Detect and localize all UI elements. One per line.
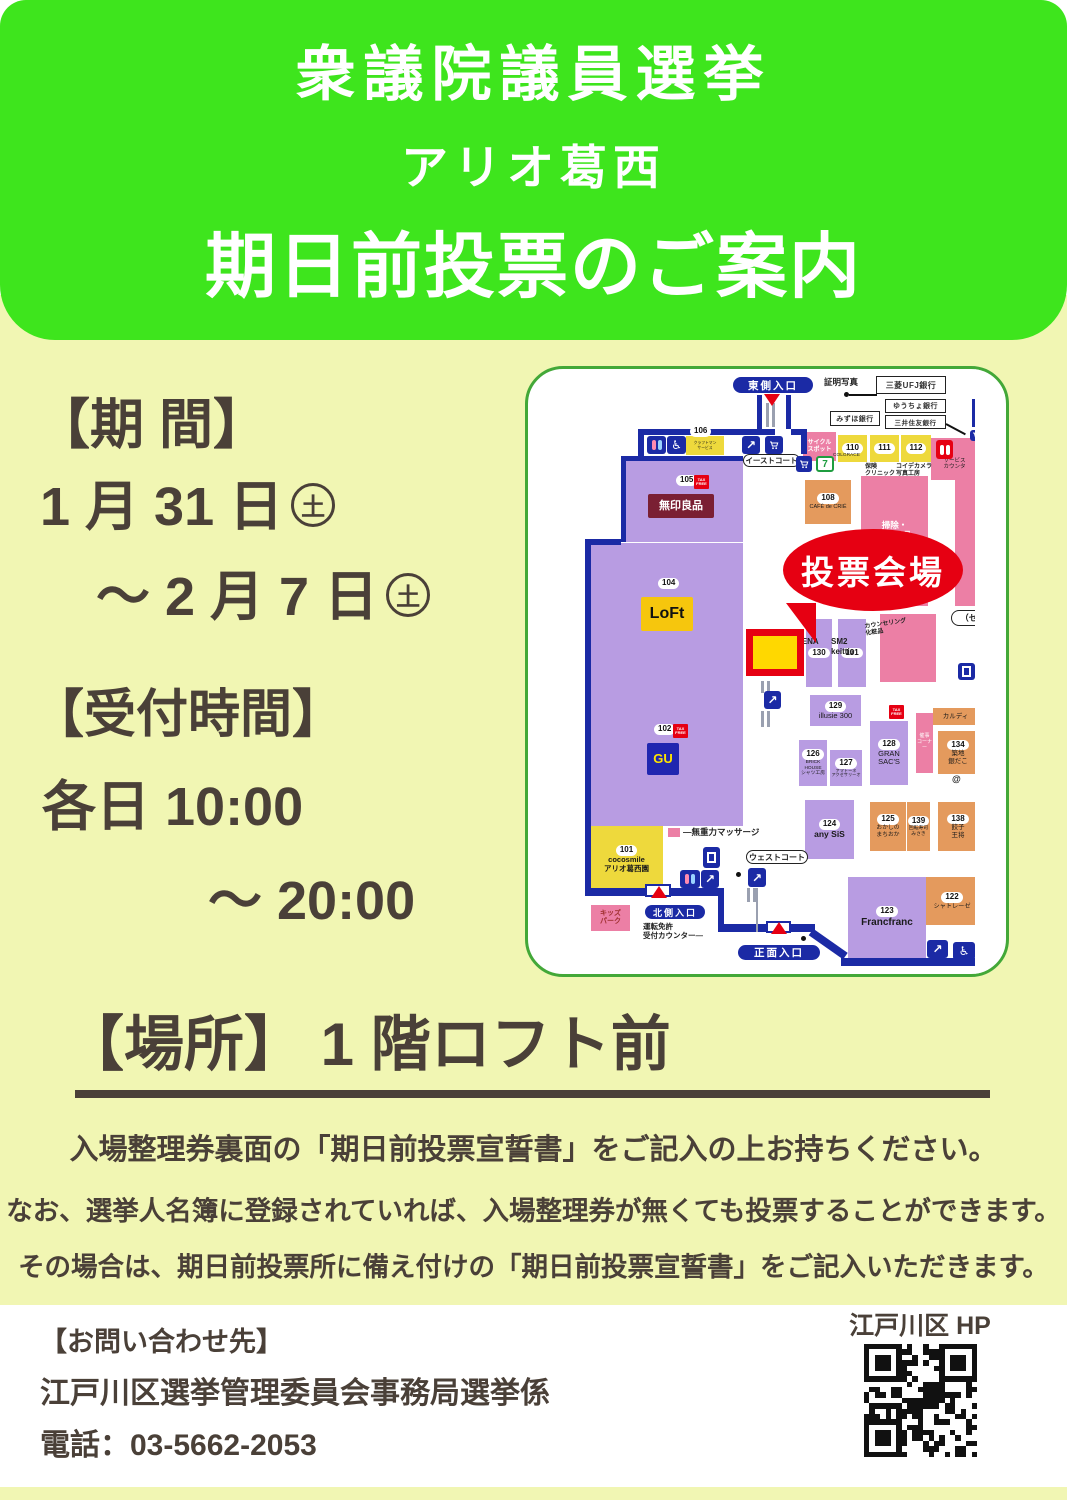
map-text: 保険 クリニック [865,464,895,478]
map-text: @ [952,774,961,785]
map-store-block: 122シャトレーゼ [926,877,978,925]
cart-icon [765,436,783,454]
mall-wall-path [585,541,591,896]
mall-wall-path [718,924,766,932]
person-glyph [946,445,950,455]
store-label: サイクル スポット [807,440,831,454]
period-to-text: ～ 2 月 7 日 [96,567,378,627]
store-label: GRAN SAC'S [878,750,900,767]
escalator-icon: ↗ [927,940,948,958]
place-line: 【場所】 1 階ロフト前 [64,996,671,1083]
map-store-block: クラフトマン サービス [686,436,724,455]
period-from: 1 月 31 日土 [40,462,335,541]
map-text: SM2 keittio [831,637,855,656]
escalator-rail [761,711,764,727]
mall-wall-path [671,888,723,896]
floor-map: クラフトマン サービス108CAFÉ de CRIÉ掃除・ 洗濯用品 キッチン1… [525,366,1009,977]
mall-wall-path [786,395,791,429]
note-line-1: 入場整理券裏面の「期日前投票宣誓書」をご記入の上お持ちください。 [0,1126,1067,1168]
map-store-block: 126BRICK HOUSE シャツ工房 [799,740,827,786]
bank-label: 三菱UFJ銀行 [876,376,946,394]
period-to: ～ 2 月 7 日土 [96,552,430,631]
entrance-pill: 正面入口 [738,945,820,960]
restroom-icon [647,436,666,454]
muji-logo: 無印良品 [648,494,714,518]
notes: 入場整理券裏面の「期日前投票宣誓書」をご記入の上お持ちください。 なお、選挙人名… [0,1126,1067,1284]
escalator-rail [766,403,769,427]
atm-icon: 7 [816,456,834,472]
mall-wall-path [585,888,647,896]
bank-label: みずほ銀行 [830,411,880,426]
store-number: 104 [658,578,679,589]
cart-glyph [799,459,809,469]
qr-code [864,1344,977,1457]
saturday-mark: 土 [386,573,430,617]
escalator-icon: ↗ [748,868,766,887]
person-glyph [658,440,662,450]
escalator-rail [756,888,758,932]
elevator-glyph [962,666,971,677]
header-banner: 衆議院議員選挙 アリオ葛西 期日前投票のご案内 [0,0,1067,340]
map-store-block: 139回転寿司 みさき [907,802,930,851]
period-from-text: 1 月 31 日 [40,477,283,537]
loft-logo: LoFt [641,597,693,631]
note-line-3: その場合は、期日前投票所に備え付けの「期日前投票宣誓書」をご記入いただきます。 [0,1245,1067,1284]
contact-org: 江戸川区選挙管理委員会事務局選挙係 [40,1368,550,1412]
map-store-block: 125おかしの まちおか [870,802,906,851]
person-glyph [940,445,944,455]
store-number: 106 [690,426,711,437]
tax-free-badge: TAX FREE [694,475,709,489]
map-store-block: 101cocosmile アリオ葛西園 [590,826,663,893]
map-edge-cover [975,369,1005,974]
map-store-block: キッズ パーク [591,905,630,931]
hours-label: 【受付時間】 [32,672,344,747]
map-store-block: 112 [901,435,931,462]
store-number: 134 [947,740,968,751]
map-store-block: カルディ [933,708,978,725]
person-glyph [685,874,689,884]
map-store-block: 108CAFÉ de CRIÉ [805,480,851,524]
entrance-pill: 北側入口 [645,905,705,919]
person-glyph [652,440,656,450]
store-number: 127 [835,758,856,769]
store-label: アマトーネ アクセサリーオ [831,769,860,779]
map-store-block: 134築地 銀だこ [938,731,978,774]
election-title: 衆議院議員選挙 [296,26,772,113]
map-text: ―無重力マッサージ [683,827,759,837]
callout-dot [736,872,741,877]
store-number: 126 [802,749,823,760]
store-number: 108 [817,493,838,504]
mall-wall-path [801,429,807,454]
store-label: 催事 コーナー [916,734,933,751]
entrance-arrow-icon [771,922,787,934]
gu-logo: GU [647,743,679,775]
store-label: カルディ [943,713,969,720]
restroom-icon [680,870,700,888]
map-store-block: 111 [870,435,899,462]
store-number: 122 [941,892,962,903]
restroom-icon [936,440,953,459]
map-text: COLGRACE [833,453,860,459]
saturday-mark: 土 [291,483,335,527]
mall-wall-path [585,539,621,545]
hp-label: 江戸川区 HP [845,1306,995,1342]
qr-module [972,1452,977,1457]
map-text: 証明写真 [824,377,858,387]
store-number: 123 [876,906,897,917]
map-store-block: 催事 コーナー [916,713,933,773]
court-label: イーストコート [743,454,800,467]
map-store-block: 127アマトーネ アクセサリーオ [830,750,862,786]
map-store-block [668,828,680,837]
escalator-rail [747,888,750,902]
entrance-arrow-icon [651,886,667,898]
map-store-block: 128GRAN SAC'S [870,721,908,785]
bank-label: ゆうちょ銀行 [885,399,946,413]
store-label: BRICK HOUSE シャツ工房 [801,760,825,777]
escalator-rail [772,403,775,427]
tax-free-badge: TAX FREE [889,705,904,719]
store-label: サービス カウンタ [943,458,965,471]
store-label: シャトレーゼ [933,903,970,910]
venue-name: アリオ葛西 [401,129,666,198]
entrance-arrow-icon [764,394,780,406]
store-label: 餃子 王将 [952,824,965,839]
escalator-icon: ↗ [764,691,781,709]
store-number: 125 [877,814,898,825]
escalator-rail [767,711,770,727]
elevator-glyph [707,852,716,863]
elevator-icon [703,847,720,868]
entrance-pill: 東側入口 [733,377,813,393]
store-number: 111 [874,443,894,454]
escalator-rail [761,681,764,693]
mall-wall-path [638,429,644,456]
callout-line [849,394,877,396]
escalator-icon: ↗ [742,436,760,454]
tax-free-badge: TAX FREE [673,724,688,738]
wheelchair-icon: ♿ [667,436,686,454]
store-label: キッズ パーク [600,910,621,926]
store-label: cocosmile アリオ葛西園 [604,856,649,873]
map-store-block: 138餃子 王将 [938,802,978,851]
map-store-block: 124any SiS [805,800,854,859]
wheelchair-icon: ♿ [953,942,975,960]
store-number: 112 [906,443,927,454]
contact-label: 【お問い合わせ先】 [40,1320,283,1359]
place-underline [75,1090,990,1098]
elevator-icon [958,663,975,680]
map-store-block: 129illusie 300 [810,695,861,726]
store-number: 129 [825,701,846,712]
store-label: any SiS [814,830,845,840]
voting-venue-callout: 投票会場 [783,529,963,611]
callout-dot [801,936,806,941]
period-label: 【期 間】 [36,380,267,459]
hours-close: ～ 20:00 [208,856,415,935]
store-label: クラフトマン サービス [694,441,717,450]
contact-tel: 電話：03-5662-2053 [40,1420,317,1464]
court-label: ウェストコート [746,850,808,864]
cart-glyph [769,440,779,450]
map-text: 運転免許 受付カウンター― [643,922,703,940]
store-number: 130 [808,648,829,659]
bank-label: 三井住友銀行 [885,415,946,429]
bottom-strip [0,1487,1067,1500]
voting-spot-marker [746,629,804,676]
store-label: 築地 銀だこ [948,750,968,765]
page-title: 期日前投票のご案内 [205,210,862,312]
note-line-2: なお、選挙人名簿に登録されていれば、入場整理券が無くても投票することができます。 [0,1189,1067,1228]
store-number: 138 [947,814,968,825]
store-label: 回転寿司 みさき [909,826,928,837]
store-label: illusie 300 [819,712,852,721]
store-label: おかしの まちおか [876,825,899,838]
cart-icon [796,456,812,472]
map-store-block: 123Francfranc [848,877,926,958]
callout-line [946,423,966,435]
person-glyph [691,874,695,884]
store-label: CAFÉ de CRIÉ [810,504,847,510]
hours-open: 各日 10:00 [42,762,303,841]
escalator-icon: ↗ [701,870,719,888]
mall-wall-path [757,395,762,429]
store-label: Francfranc [861,917,913,929]
map-text: コイデカメラ 写真工房 [896,464,932,478]
store-number: 139 [908,816,929,827]
